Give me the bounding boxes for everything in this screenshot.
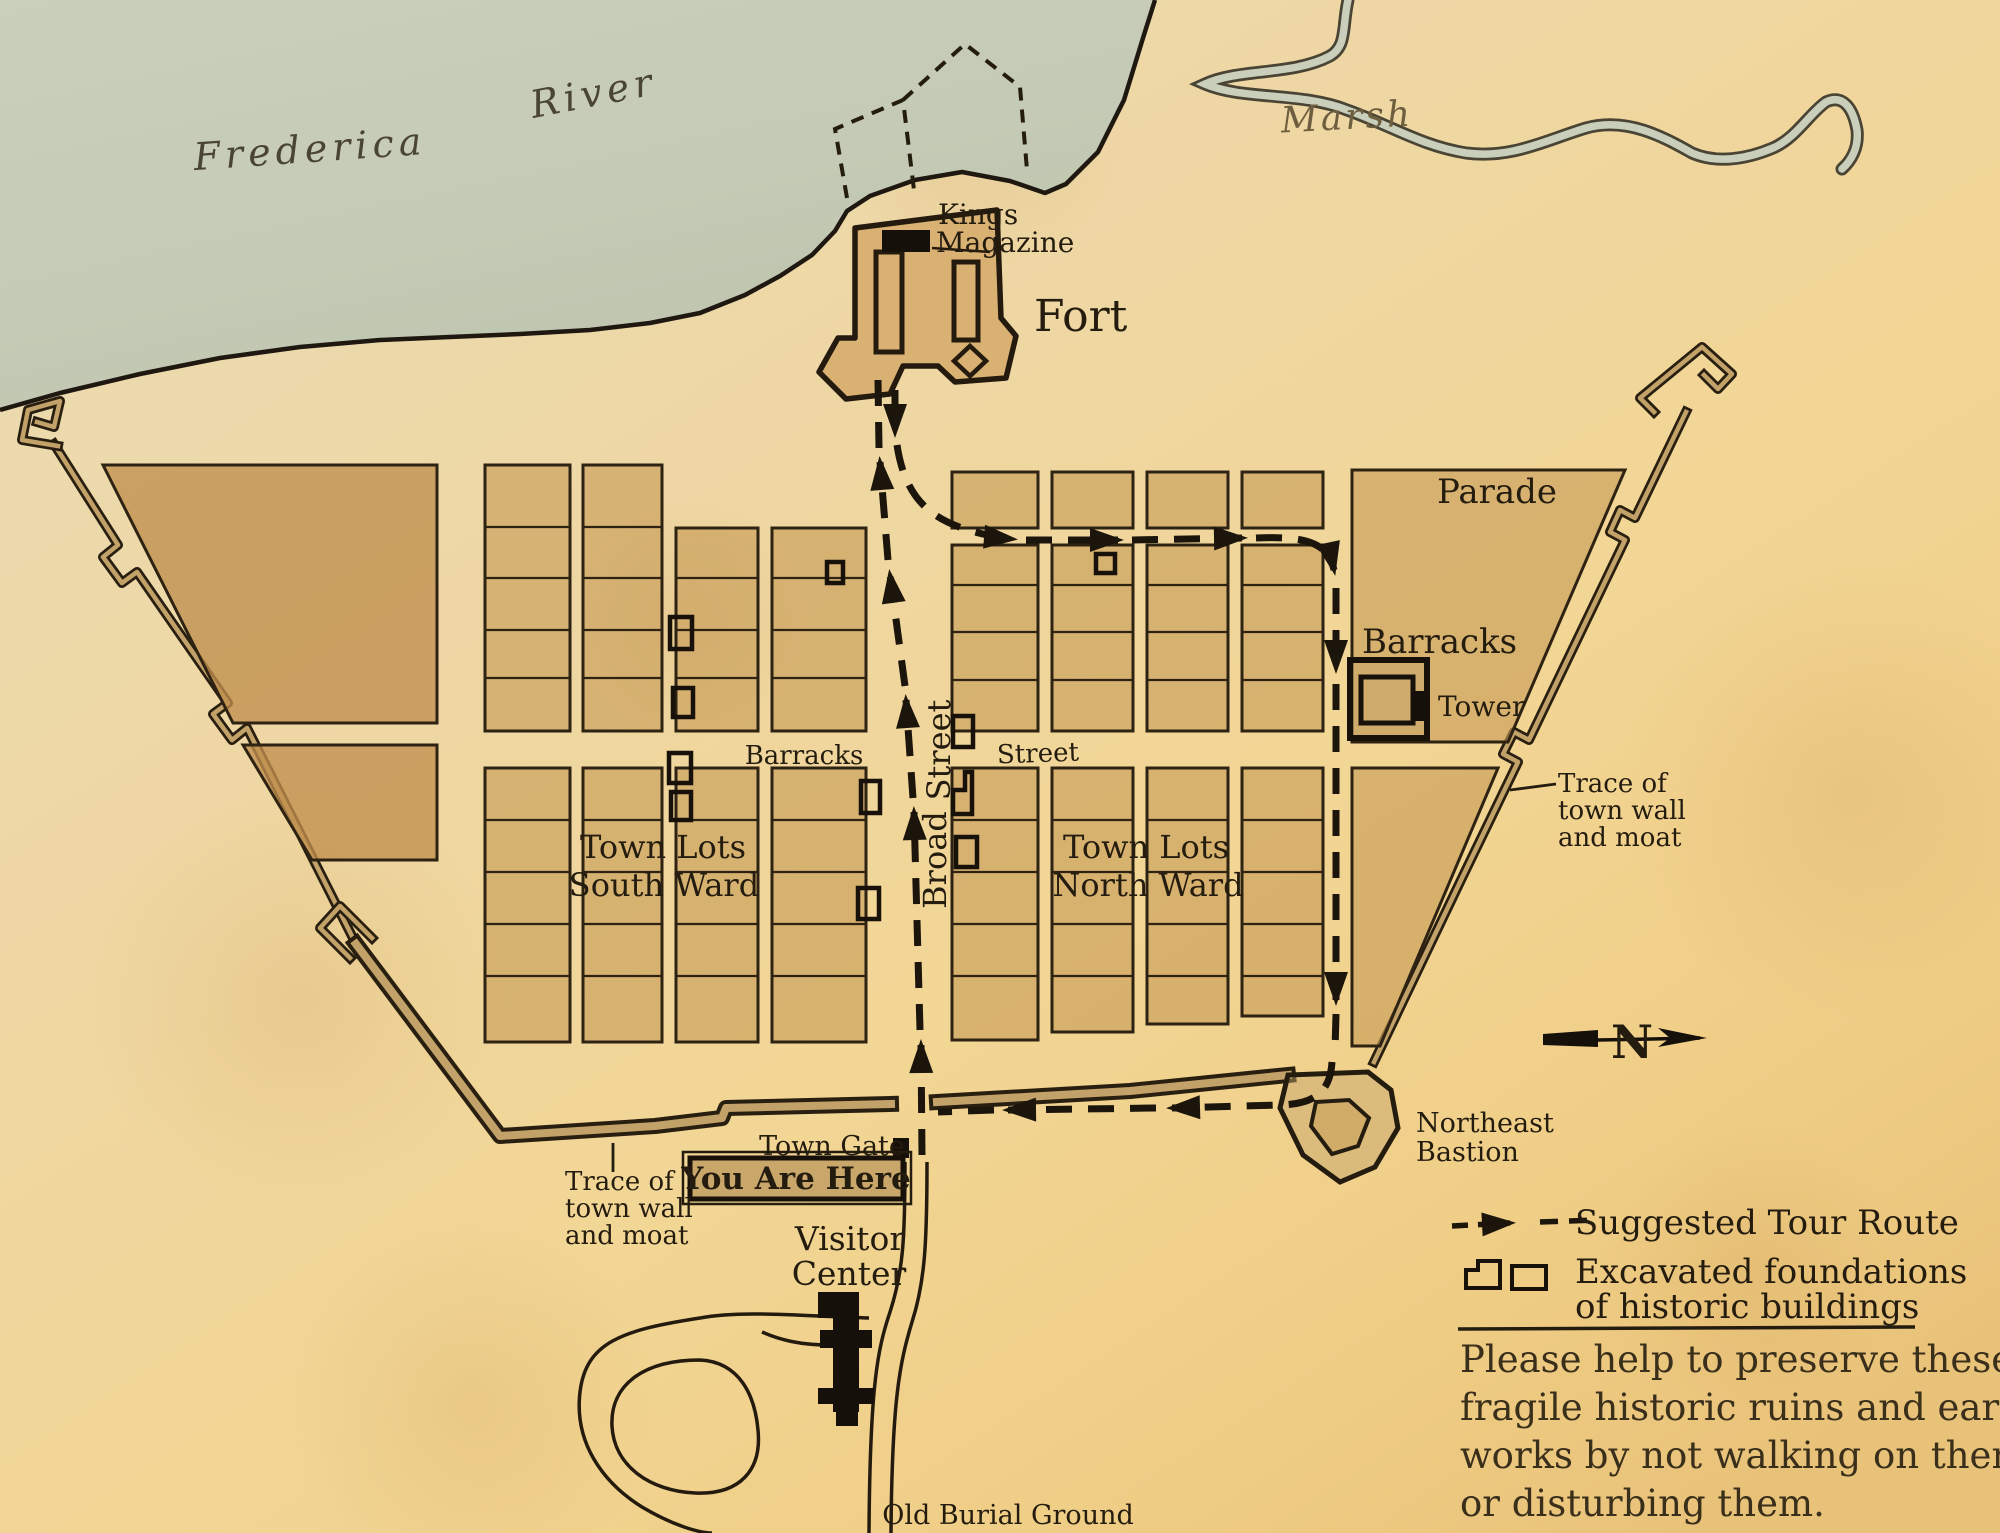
barracks-street-label-east: Street (997, 738, 1080, 771)
trace-wall-right-line3: and moat (1558, 823, 1682, 853)
notice-line-2: fragile historic ruins and earth- (1460, 1386, 2000, 1429)
fort-frederica-map: Frederica River Marsh Kings Magazine For… (0, 0, 2000, 1533)
map-sign: Frederica River Marsh Kings Magazine For… (0, 0, 2000, 1533)
you-are-here-label: You Are Here (680, 1161, 910, 1197)
trace-wall-right-line2: town wall (1558, 796, 1686, 826)
barracks-building-label: Barracks (1362, 622, 1517, 662)
barracks-street-label-west: Barracks (745, 741, 864, 771)
north-arrow-letter: N (1611, 1015, 1653, 1069)
northeast-bastion-label-line2: Bastion (1416, 1137, 1519, 1168)
kings-magazine-shape (882, 230, 930, 252)
visitor-center-label-line2: Center (792, 1254, 907, 1293)
town-gate-label: Town Gate (759, 1131, 905, 1162)
legend-foundations-label-line1: Excavated foundations (1575, 1252, 1967, 1292)
broad-street-label-street: Street (920, 699, 958, 800)
south-ward-label-line2: South Ward (569, 866, 759, 904)
notice-line-1: Please help to preserve these (1460, 1338, 2000, 1381)
legend-foundations-label-line2: of historic buildings (1575, 1287, 1919, 1327)
trace-wall-left-line2: town wall (565, 1194, 693, 1224)
old-burial-ground-label: Old Burial Ground (882, 1500, 1134, 1531)
fort-label: Fort (1034, 291, 1128, 342)
trace-wall-left-line3: and moat (565, 1221, 689, 1251)
legend-tour-route-label: Suggested Tour Route (1575, 1203, 1959, 1243)
notice-line-3: works by not walking on them (1460, 1434, 2000, 1477)
tower-label: Tower (1438, 690, 1526, 723)
visitor-center-label-line1: Visitor (794, 1219, 905, 1258)
marsh-label: Marsh (1279, 94, 1414, 142)
notice-line-4: or disturbing them. (1460, 1482, 1825, 1525)
kings-magazine-label-line2: Magazine (936, 226, 1074, 259)
parade-label: Parade (1437, 472, 1557, 512)
north-ward-label-line2: North Ward (1052, 866, 1243, 904)
south-ward-label-line1: Town Lots (580, 828, 746, 866)
trace-wall-left-line1: Trace of (565, 1167, 676, 1197)
trace-wall-right-line1: Trace of (1558, 769, 1669, 799)
tower-shape (1412, 691, 1427, 721)
broad-street-label-broad: Broad (916, 811, 954, 909)
barracks-building-shape (1350, 660, 1427, 738)
legend-divider (1458, 1327, 1915, 1329)
north-ward-label-line1: Town Lots (1063, 828, 1229, 866)
northeast-bastion-label-line1: Northeast (1416, 1108, 1554, 1139)
